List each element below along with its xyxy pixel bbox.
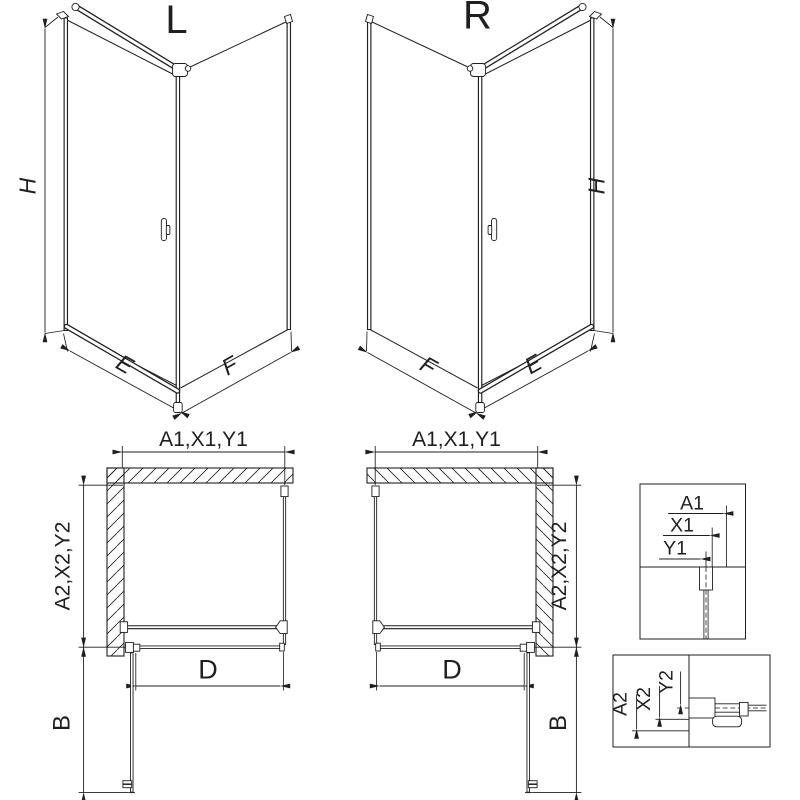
plan-geometry-left	[79, 446, 293, 793]
detail-a1-label: A1	[680, 493, 704, 515]
detail-a2-label: A2	[610, 692, 632, 716]
variant-label-right: R	[463, 0, 492, 38]
plan-view-right	[367, 446, 581, 793]
view-3d-right	[366, 3, 614, 413]
view-3d-left	[45, 3, 293, 413]
variant-label-left: L	[165, 0, 187, 42]
dim-door-width-left: D	[198, 655, 218, 685]
detail-x2-label: X2	[633, 687, 655, 711]
dim-width-left: A1,X1,Y1	[159, 428, 248, 451]
dim-height-left: H	[15, 177, 41, 194]
dim-depth-left: A2,X2,Y2	[52, 522, 75, 611]
enclosure-3d-geometry-right	[366, 3, 614, 413]
dim-swing-right: B	[545, 715, 572, 731]
technical-drawing-page: L R H H E F F E A1,X1,Y1 A1,X1,Y1 A2,X2,…	[0, 0, 800, 800]
dim-door-width-right: D	[442, 655, 462, 685]
dim-depth-right: A2,X2,Y2	[548, 522, 571, 611]
shower-enclosure-diagram: L R H H E F F E A1,X1,Y1 A1,X1,Y1 A2,X2,…	[0, 0, 800, 800]
dim-f-left: F	[217, 350, 244, 381]
dim-f-right: F	[416, 351, 443, 382]
dim-height-right: H	[584, 177, 610, 194]
plan-view-left	[79, 446, 293, 793]
detail-y2-label: Y2	[656, 670, 678, 694]
dim-swing-left: B	[49, 715, 76, 731]
plan-geometry-right	[367, 446, 581, 793]
dim-width-right: A1,X1,Y1	[412, 428, 501, 451]
detail-x1-label: X1	[670, 515, 694, 537]
detail-y1-label: Y1	[663, 538, 687, 560]
enclosure-3d-geometry-left	[45, 3, 293, 413]
